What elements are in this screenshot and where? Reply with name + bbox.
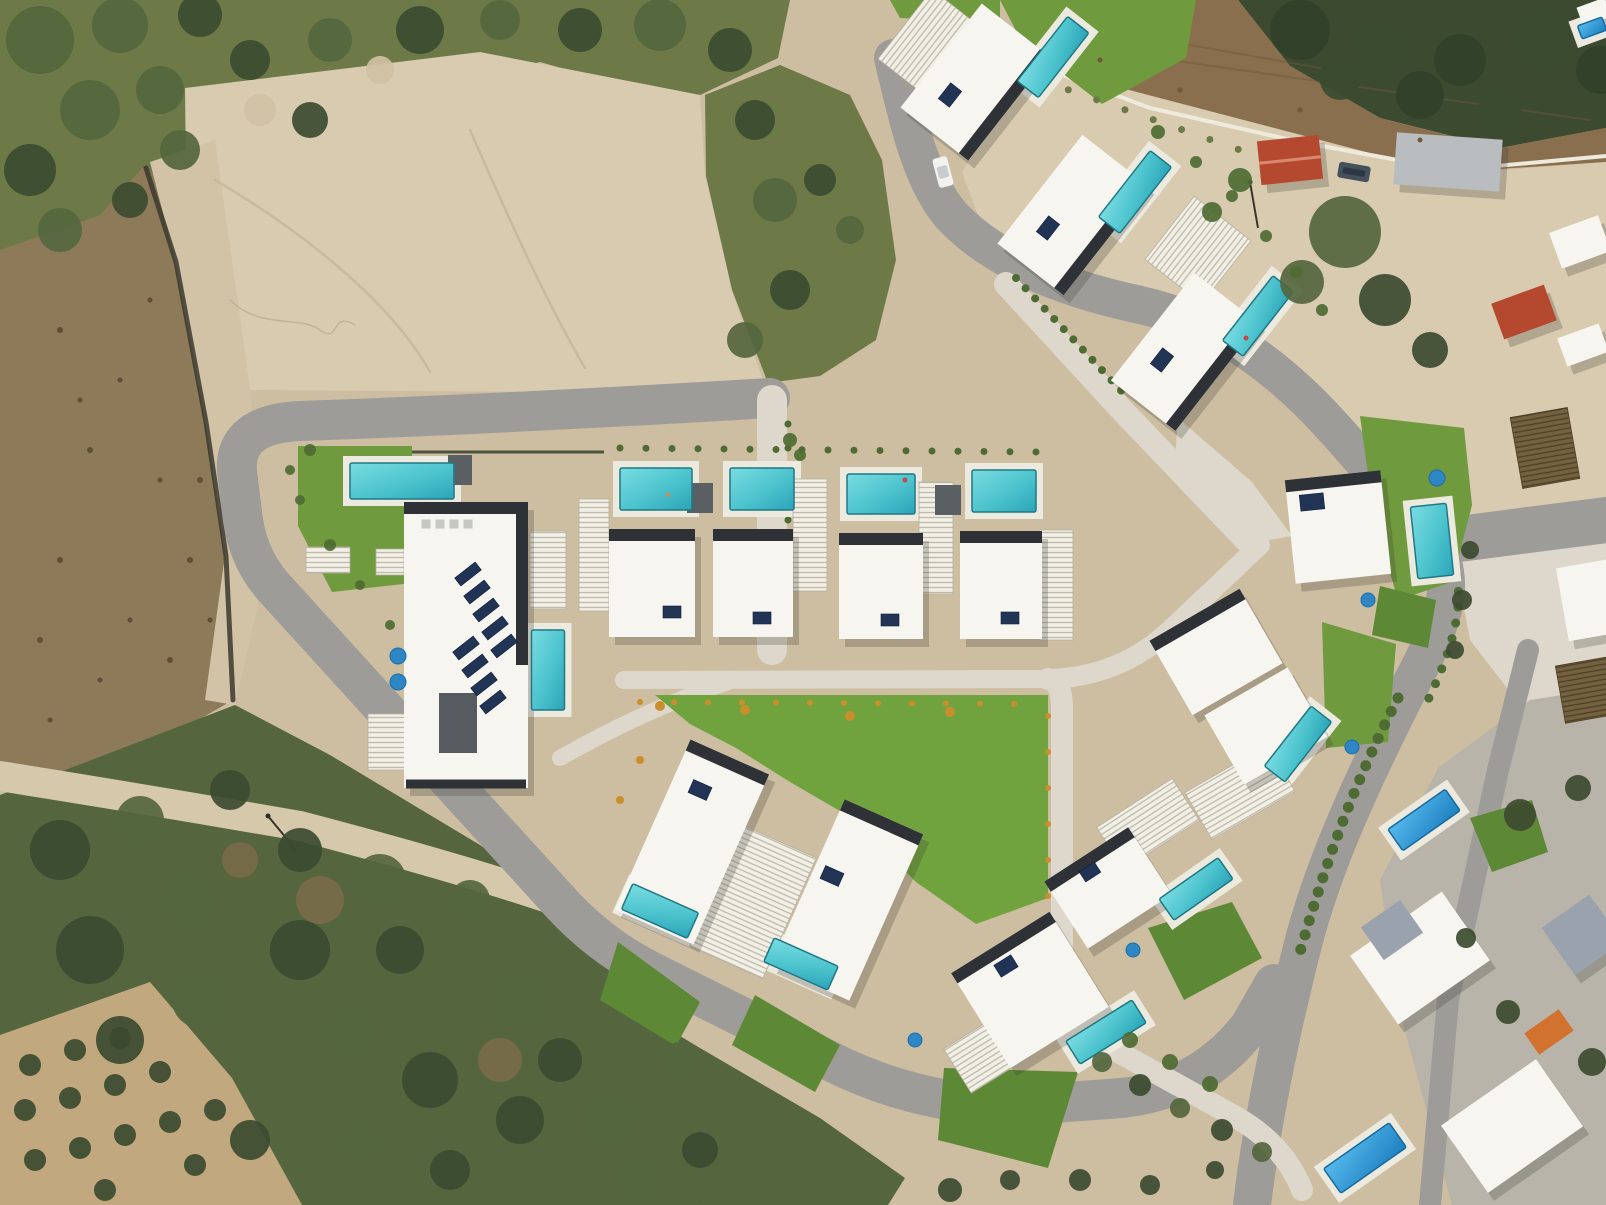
tree xyxy=(1228,168,1252,192)
roof-detail xyxy=(464,520,473,529)
tree xyxy=(770,270,810,310)
tree xyxy=(1270,0,1330,60)
ground-detail xyxy=(48,718,53,723)
tree xyxy=(1129,1074,1151,1096)
pergola xyxy=(579,499,609,611)
tree xyxy=(1478,88,1522,132)
tree xyxy=(159,1111,181,1133)
tree xyxy=(149,1061,171,1083)
ground-detail xyxy=(208,618,213,623)
tree xyxy=(1510,10,1570,70)
tree xyxy=(1206,1161,1224,1179)
solar-panel xyxy=(753,612,771,624)
tree xyxy=(634,0,686,51)
tree xyxy=(164,874,216,926)
tree xyxy=(1461,541,1479,559)
tree xyxy=(1092,1052,1112,1072)
lane-horizontal xyxy=(624,679,1046,680)
ground-detail xyxy=(616,796,624,804)
ground-detail xyxy=(1298,108,1303,113)
roof-edge xyxy=(609,529,695,541)
tree xyxy=(1202,202,1222,222)
ground-detail xyxy=(167,657,173,663)
tree xyxy=(662,1042,698,1078)
tree xyxy=(494,974,546,1026)
tree xyxy=(1190,156,1202,168)
tree xyxy=(230,1120,270,1160)
tree xyxy=(584,1094,636,1146)
dark-pergola xyxy=(1510,408,1580,489)
tree xyxy=(116,796,164,844)
tree xyxy=(104,1074,126,1096)
aerial-photo: Aerial drone photo, top-down view of a m… xyxy=(0,0,1606,1205)
ground-detail xyxy=(740,705,750,715)
ground-detail xyxy=(37,637,43,643)
round-spa xyxy=(1429,470,1445,486)
tree xyxy=(222,842,258,878)
pergola xyxy=(306,547,350,573)
tree xyxy=(402,1052,458,1108)
solar-panel xyxy=(1001,612,1019,624)
tree xyxy=(114,1124,136,1146)
tree xyxy=(1211,1119,1233,1141)
tree xyxy=(1260,230,1272,242)
tree xyxy=(1456,928,1476,948)
tree xyxy=(278,828,322,872)
tree xyxy=(14,1099,36,1121)
tree xyxy=(836,216,864,244)
tree xyxy=(480,0,520,40)
tree xyxy=(1226,190,1238,202)
ground-detail xyxy=(98,678,103,683)
tree xyxy=(64,1039,86,1061)
tree xyxy=(450,880,490,920)
tree xyxy=(1202,1076,1218,1092)
tree xyxy=(1309,196,1381,268)
swimming-pool xyxy=(730,468,794,510)
roof-detail xyxy=(516,505,528,665)
tree xyxy=(366,56,394,84)
tree xyxy=(60,80,120,140)
tree xyxy=(1000,1170,1020,1190)
clubhouse-side-pool xyxy=(532,630,565,710)
solar-panel xyxy=(1299,493,1325,511)
ground-detail xyxy=(128,618,133,623)
tree xyxy=(794,449,806,461)
tree xyxy=(172,972,228,1028)
tree xyxy=(292,102,328,138)
tree xyxy=(753,178,797,222)
roof-edge xyxy=(713,529,793,541)
ground-detail xyxy=(57,557,63,563)
pergola xyxy=(368,714,408,770)
roof-detail xyxy=(436,520,445,529)
tree xyxy=(30,820,90,880)
round-spa xyxy=(1126,943,1140,957)
ground-detail xyxy=(1098,58,1103,63)
tree xyxy=(94,1179,116,1201)
tree xyxy=(1504,799,1536,831)
tree xyxy=(804,164,836,196)
swimming-pool xyxy=(1410,503,1453,578)
tree xyxy=(109,1027,131,1049)
tree xyxy=(296,876,344,924)
villa xyxy=(609,529,695,637)
tree xyxy=(295,495,305,505)
tree xyxy=(56,916,124,984)
roof-edge xyxy=(839,533,923,545)
tree xyxy=(558,8,602,52)
roof-detail xyxy=(439,693,477,753)
roof-detail xyxy=(406,780,526,789)
pergola xyxy=(376,549,404,575)
ground-detail xyxy=(1178,88,1183,93)
ground-detail xyxy=(945,707,955,717)
ground-detail xyxy=(158,478,163,483)
roof-detail xyxy=(450,520,459,529)
tree xyxy=(354,854,406,906)
solar-panel xyxy=(881,614,899,626)
tree xyxy=(4,144,56,196)
tree xyxy=(618,1158,662,1202)
tree xyxy=(1252,1142,1272,1162)
tree xyxy=(682,1132,718,1168)
tree xyxy=(204,1099,226,1121)
screenshot-root: Aerial drone photo, top-down view of a m… xyxy=(0,0,1606,1205)
tree xyxy=(1320,60,1360,100)
tree xyxy=(324,539,336,551)
tree xyxy=(19,1054,41,1076)
solar-panel xyxy=(663,606,681,618)
tree xyxy=(112,182,148,218)
ground-detail xyxy=(87,447,93,453)
aerial-photo-canvas xyxy=(0,0,1606,1205)
round-spa xyxy=(390,674,406,690)
tree xyxy=(396,6,444,54)
tree xyxy=(69,1137,91,1159)
tree xyxy=(184,1154,206,1176)
tree xyxy=(1565,775,1591,801)
tree xyxy=(430,1150,470,1190)
ground-detail xyxy=(655,701,665,711)
tree xyxy=(1496,1000,1520,1024)
tree xyxy=(1162,1054,1178,1070)
tree xyxy=(1069,1169,1091,1191)
tree xyxy=(538,1038,582,1082)
tree xyxy=(1290,266,1302,278)
ground-detail xyxy=(197,477,203,483)
tree xyxy=(6,6,74,74)
tree xyxy=(376,926,424,974)
clubhouse-lap-pool xyxy=(350,463,454,499)
tree xyxy=(324,1004,376,1056)
tree xyxy=(1434,34,1486,86)
shed xyxy=(1393,132,1502,191)
ground-detail xyxy=(1418,138,1423,143)
tree xyxy=(136,66,184,114)
tree xyxy=(1412,332,1448,368)
roof-detail xyxy=(422,520,431,529)
swimming-pool xyxy=(972,470,1036,512)
tree xyxy=(1452,590,1472,610)
round-spa xyxy=(1361,593,1375,607)
tree xyxy=(496,1096,544,1144)
ground-detail xyxy=(1244,336,1249,341)
ground-detail xyxy=(845,711,855,721)
tree xyxy=(727,322,763,358)
tree xyxy=(938,1178,962,1202)
ground-detail xyxy=(78,398,83,403)
villa-pool xyxy=(620,468,692,510)
tree xyxy=(783,433,797,447)
tree xyxy=(24,1149,46,1171)
tree xyxy=(304,444,316,456)
tree xyxy=(308,18,352,62)
tree xyxy=(270,920,330,980)
round-spa xyxy=(1345,740,1359,754)
tree xyxy=(1280,260,1324,304)
tree xyxy=(1151,125,1165,139)
roof-detail xyxy=(935,485,961,515)
tree xyxy=(1396,71,1444,119)
tree xyxy=(1140,1175,1160,1195)
ground-detail xyxy=(148,298,153,303)
tree xyxy=(1359,274,1411,326)
tree xyxy=(338,1118,382,1162)
tree xyxy=(59,1087,81,1109)
round-spa xyxy=(908,1033,922,1047)
ground-detail xyxy=(636,756,644,764)
tree xyxy=(285,465,295,475)
tree xyxy=(355,580,365,590)
tree xyxy=(735,100,775,140)
tree xyxy=(1316,304,1328,316)
tree xyxy=(244,94,276,126)
tree xyxy=(1170,1098,1190,1118)
ground-detail xyxy=(187,557,193,563)
roof-edge xyxy=(404,502,528,514)
tree xyxy=(478,1038,522,1082)
tree xyxy=(210,770,250,810)
roof-edge xyxy=(960,531,1042,543)
tree xyxy=(1578,1048,1606,1076)
tree xyxy=(230,40,270,80)
tree xyxy=(708,28,752,72)
tree xyxy=(38,208,82,252)
tree xyxy=(1122,1032,1138,1048)
ground-detail xyxy=(118,378,123,383)
tree xyxy=(385,620,395,630)
round-spa xyxy=(390,648,406,664)
ground-detail xyxy=(666,493,670,497)
power-pole xyxy=(266,814,271,819)
tree xyxy=(1446,641,1464,659)
tree xyxy=(1352,22,1408,78)
ground-detail xyxy=(903,478,908,483)
ground-detail xyxy=(57,327,63,333)
tree xyxy=(160,130,200,170)
pergola xyxy=(530,531,566,609)
